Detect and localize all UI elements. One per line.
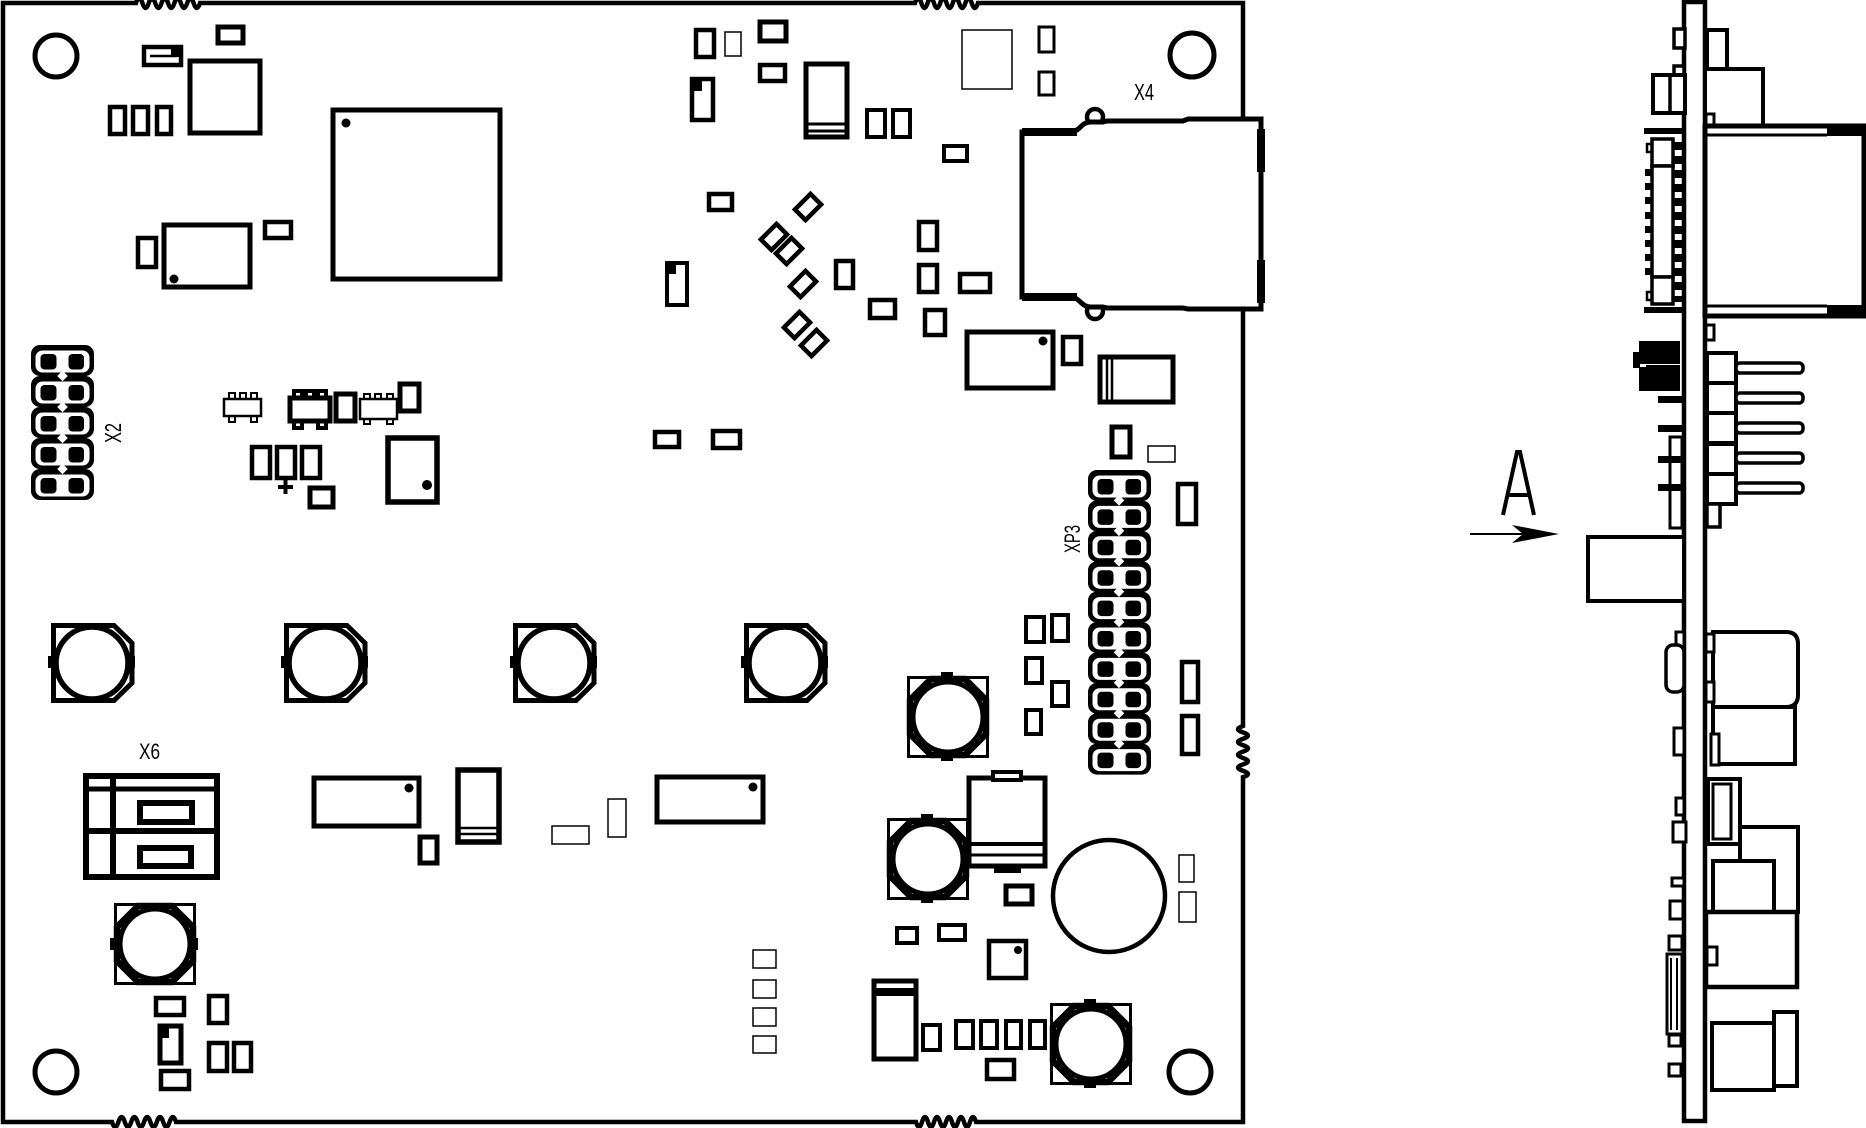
svg-text:XP3: XP3 bbox=[1060, 525, 1085, 553]
svg-text:X4: X4 bbox=[1134, 79, 1154, 105]
svg-text:X6: X6 bbox=[139, 739, 160, 764]
svg-text:X2: X2 bbox=[100, 423, 126, 443]
